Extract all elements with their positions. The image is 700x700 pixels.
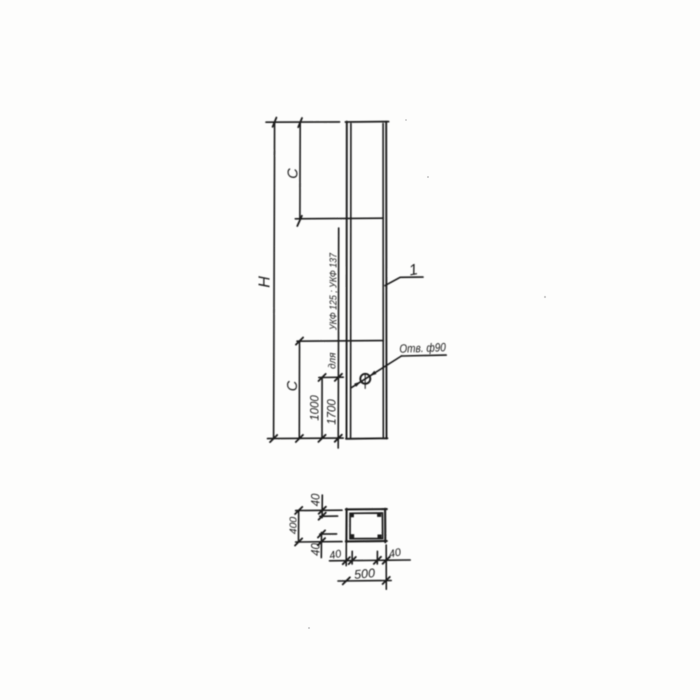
svg-text:C: C bbox=[286, 168, 302, 179]
svg-text:400: 400 bbox=[287, 517, 299, 535]
svg-text:500: 500 bbox=[354, 566, 376, 582]
svg-text:1000: 1000 bbox=[310, 395, 322, 421]
svg-text:Отв. ф90: Отв. ф90 bbox=[399, 340, 446, 356]
svg-text:1700: 1700 bbox=[327, 399, 339, 425]
svg-text:40: 40 bbox=[311, 543, 323, 556]
svg-text:40: 40 bbox=[311, 493, 323, 506]
svg-text:1: 1 bbox=[408, 261, 419, 279]
svg-text:УКФ 125 ; УКФ 137: УКФ 125 ; УКФ 137 bbox=[328, 252, 340, 331]
svg-text:для: для bbox=[328, 352, 339, 369]
svg-text:H: H bbox=[256, 276, 273, 288]
svg-text:40: 40 bbox=[328, 548, 342, 562]
svg-text:C: C bbox=[285, 380, 301, 391]
svg-text:40: 40 bbox=[388, 546, 402, 560]
